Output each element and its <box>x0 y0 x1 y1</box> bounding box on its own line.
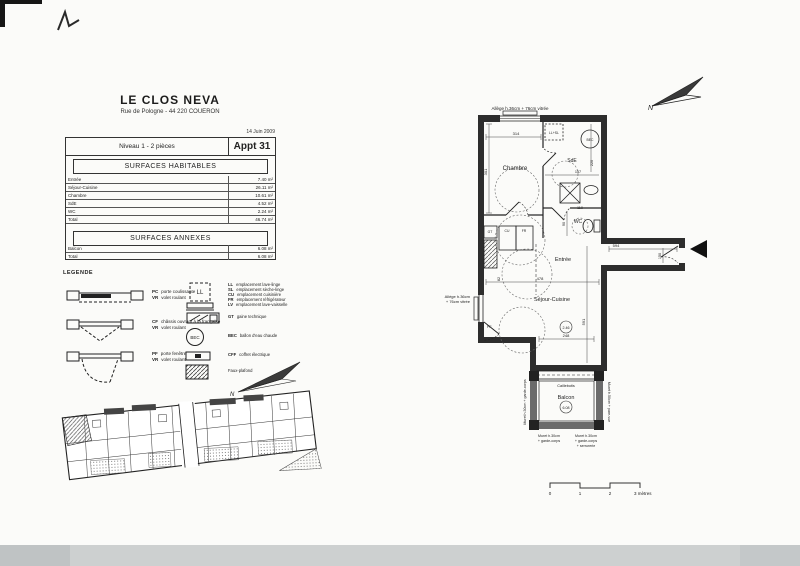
fr-label: FR <box>522 229 527 233</box>
muret-bottom-right: Muret h.30cm <box>575 434 597 438</box>
dim-sde-height: 220 <box>590 160 594 166</box>
chambre-window <box>500 111 540 122</box>
scale-tick-3: 3 mètres <box>634 491 652 496</box>
muret-bottom-left2: + garde-corps <box>538 439 560 443</box>
room-label-chambre: Chambre <box>503 166 528 172</box>
room-label-sde: SdE <box>567 158 577 164</box>
bec-label: BEC <box>587 138 595 142</box>
dim-door: 150 <box>658 253 662 259</box>
clearance-circles <box>495 161 588 353</box>
muret-bottom-right2: + garde-corps <box>575 439 597 443</box>
ll-sl-label: LL+SL <box>549 131 559 135</box>
caillebotis-label: Caillebotis <box>557 384 575 388</box>
gt-label: GT <box>488 230 493 234</box>
scan-bottom-band <box>0 545 800 566</box>
pf-label: PF <box>487 325 492 329</box>
scan-bottom-shadow-left <box>0 545 70 566</box>
doors <box>484 148 678 340</box>
dim-sde-width: 157 <box>575 170 581 174</box>
scanned-floor-plan-page: LE CLOS NEVA Rue de Pologne - 44 220 COU… <box>0 0 800 566</box>
scale-tick-2: 2 <box>609 491 612 496</box>
dim-sejour-height: 591 <box>581 318 586 325</box>
window-annotation: + 76cm vitrée <box>446 299 471 304</box>
dim-sejour-width: 478 <box>537 276 544 281</box>
scan-bottom-shadow-right <box>740 545 800 566</box>
window-annotation: Allège h.36cm + 76cm vitrée <box>492 106 549 111</box>
exterior-walls <box>478 115 685 371</box>
muret-bottom-left: Muret h.30cm <box>538 434 560 438</box>
dim-balcon-door: 248 <box>563 333 570 338</box>
scale-bar <box>550 483 640 488</box>
dim-chambre-height: 301 <box>483 168 488 175</box>
sejour-window <box>474 295 484 322</box>
dim-kitchen: 82 <box>497 277 501 281</box>
interior-partitions <box>484 122 601 238</box>
scale-tick-1: 1 <box>579 491 582 496</box>
north-label: N <box>230 392 235 398</box>
muret-left: Muret h.30cm + garde-corps <box>523 379 527 424</box>
door-ref-value: 2.46 <box>563 326 570 330</box>
dim-basin: 110 <box>577 206 583 210</box>
dim-wc-height: 90 <box>562 222 566 226</box>
north-arrow-plan: N <box>648 77 703 112</box>
dim-chambre-width: 314 <box>513 131 520 136</box>
room-label-balcon: Balcon <box>558 395 575 401</box>
balcon-area-value: 6.08 <box>563 406 570 410</box>
room-label-sejour: Séjour-Cuisine <box>534 297 570 303</box>
dim-corridor: 594 <box>613 243 620 248</box>
room-label-wc: WC <box>574 219 583 225</box>
room-label-entree: Entrée <box>555 257 571 263</box>
muret-right: Muret h.50cm + pare-vue <box>607 382 611 422</box>
apartment-floor-plan: Allège h.36cm + 76cm vitrée Allège h.36c… <box>445 106 707 448</box>
scale-tick-0: 0 <box>549 491 552 496</box>
drawing-layer: Allège h.36cm + 76cm vitrée Allège h.36c… <box>0 0 800 566</box>
cu-label: CU <box>505 229 510 233</box>
building-key-plan <box>62 391 322 482</box>
muret-bottom-right3: + serrurerie <box>577 444 595 448</box>
entry-arrow-icon <box>690 240 707 258</box>
